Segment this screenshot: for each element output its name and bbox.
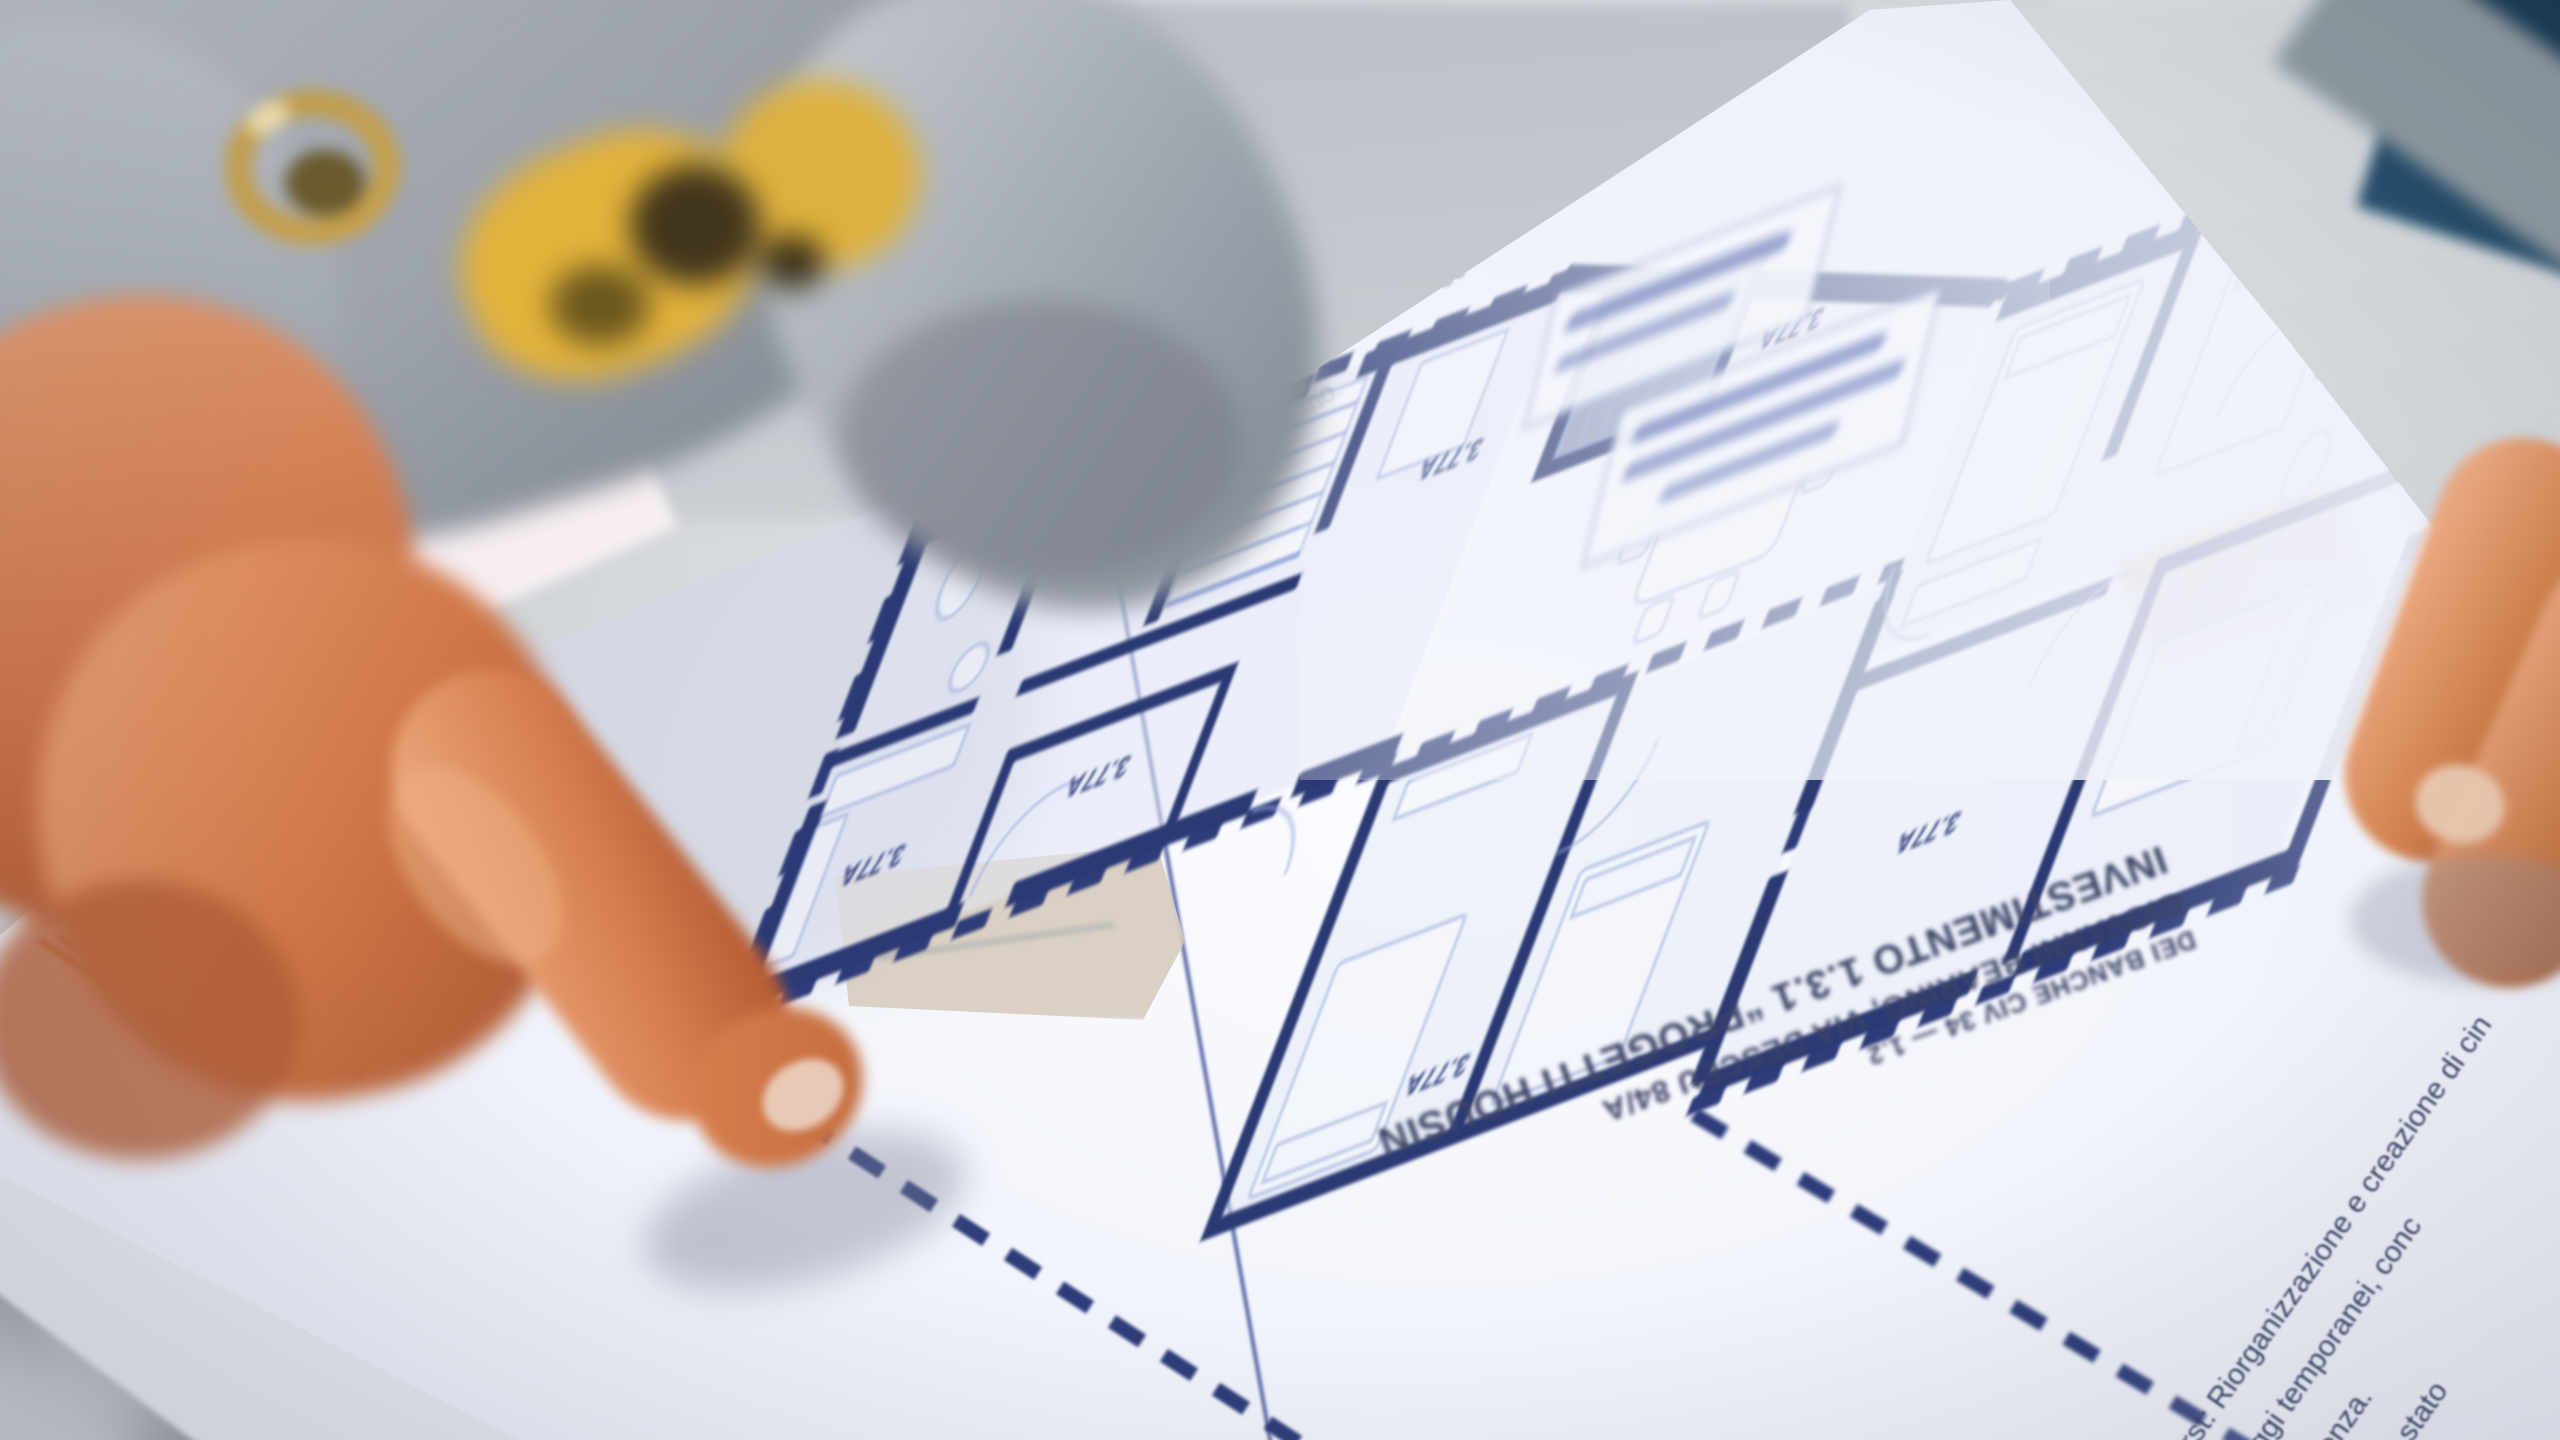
paperclip-icon	[14, 902, 155, 1037]
photo-scene: izzazione dei asset ASSE Via Tel connett…	[0, 0, 2560, 1440]
red-plan-wall	[181, 0, 328, 47]
